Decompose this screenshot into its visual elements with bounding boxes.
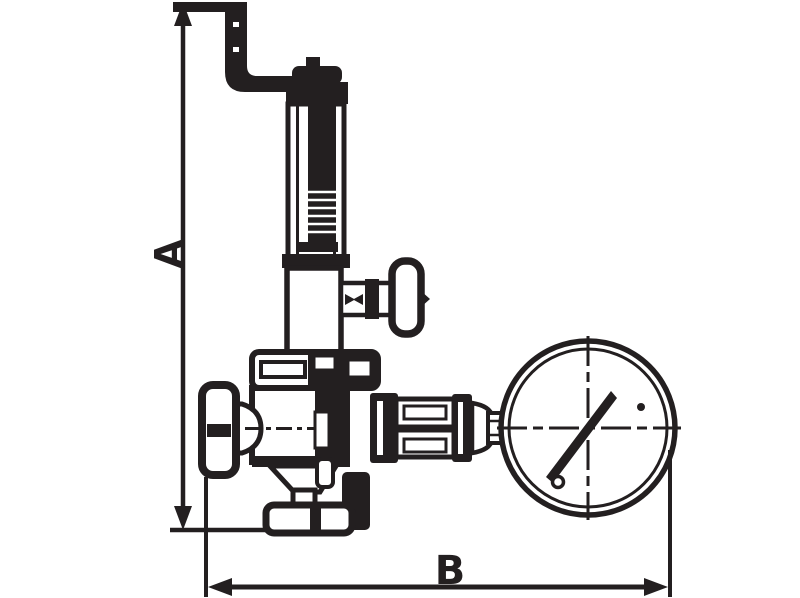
- outlet-flange: [266, 505, 352, 533]
- lever-handle: [173, 2, 296, 92]
- handle-notch: [233, 47, 239, 52]
- body-top-flange: [252, 352, 378, 388]
- arrow-down-icon: [174, 506, 192, 530]
- adjusting-cap: [286, 57, 348, 104]
- cap-dome: [292, 66, 342, 84]
- handle-notch: [233, 22, 239, 27]
- union-nut-facet: [377, 401, 383, 455]
- upper-body: [287, 268, 341, 354]
- outlet-slot: [317, 459, 333, 487]
- drawing-canvas: A: [0, 0, 800, 598]
- dial-stop-pin: [637, 403, 645, 411]
- spring-bonnet: [282, 104, 350, 268]
- gauge-nut-facet: [458, 402, 463, 454]
- needle-tail-ring: [553, 477, 564, 488]
- dimension-b-label: B: [435, 548, 466, 594]
- valve-dimensional-drawing: A: [0, 0, 800, 598]
- bottom-outlet: [266, 459, 352, 533]
- arrow-left-icon: [208, 578, 232, 596]
- fitting-mid-band: [396, 425, 454, 433]
- outlet-flange-band: [310, 507, 321, 532]
- flange-right-window: [348, 360, 371, 377]
- flange-center-slot: [314, 356, 335, 370]
- arrow-right-icon: [644, 578, 668, 596]
- body-inner-stem: [315, 412, 329, 448]
- stem-collar: [365, 279, 379, 319]
- tee-handle-knob: [392, 261, 421, 334]
- knob-tip: [421, 291, 430, 307]
- gauge-connection-fitting: [370, 393, 506, 463]
- dimension-a-label: A: [147, 239, 191, 269]
- handwheel-mid-band: [207, 424, 231, 437]
- tee-handle: [341, 261, 430, 334]
- bonnet-locknut: [296, 242, 338, 252]
- pressure-gauge: [497, 336, 681, 520]
- cap-base: [286, 82, 348, 104]
- adjusting-screw: [308, 104, 334, 242]
